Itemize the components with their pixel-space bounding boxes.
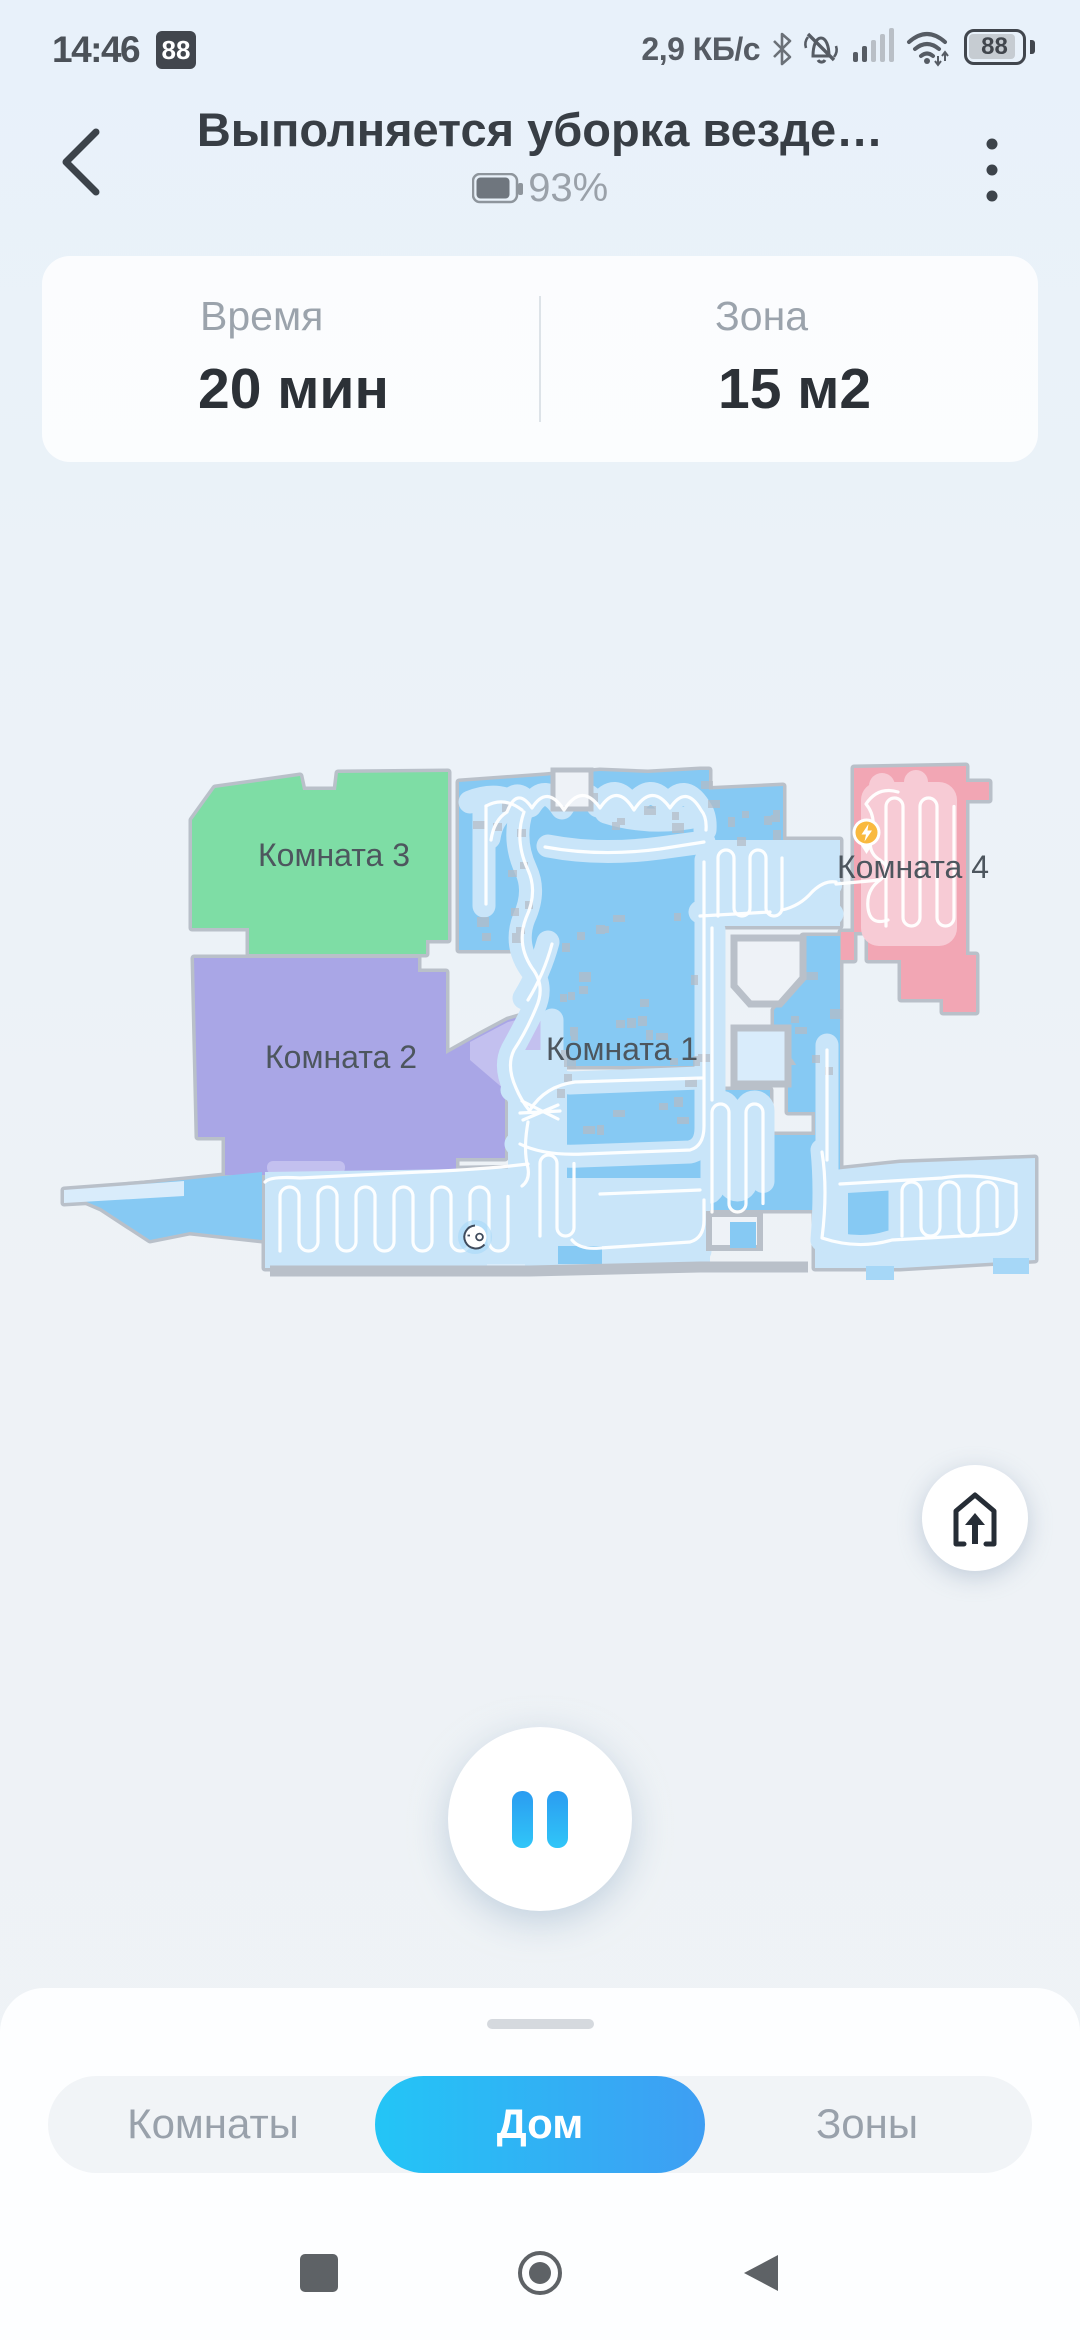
svg-text:Комната 4: Комната 4 [837,849,989,885]
svg-text:Комната 3: Комната 3 [258,837,410,873]
svg-text:Комната 2: Комната 2 [265,1039,417,1075]
svg-text:Комната 1: Комната 1 [546,1031,698,1067]
